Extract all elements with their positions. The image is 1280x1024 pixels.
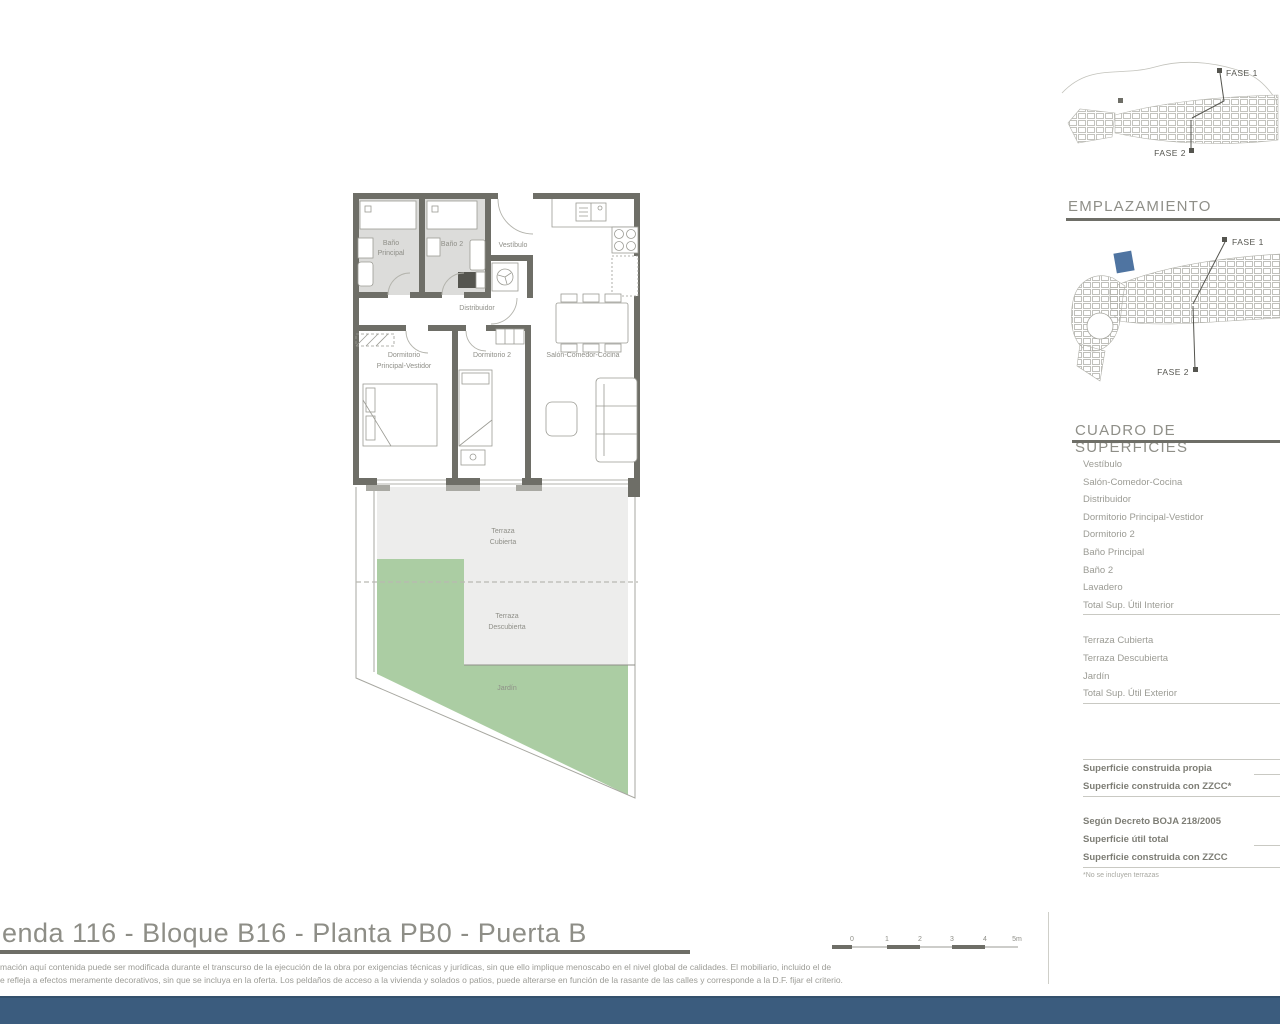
emplazamiento-rule [1066, 218, 1280, 221]
plan-sheet: Baño Principal Baño 2 Vestíbulo Distribu… [0, 0, 1280, 1024]
fase-1-marker [1217, 68, 1222, 73]
scale-tick: 4 [983, 936, 987, 943]
table-row: Terraza Cubierta [1083, 632, 1280, 650]
fase-2-marker [1189, 148, 1194, 153]
scale-tick: 2 [918, 936, 922, 943]
room-label-terraza-cubierta: Terraza [491, 528, 514, 535]
built-surface-row: Superficie construida propia [1083, 759, 1280, 778]
fase-2-label: FASE 2 [1154, 148, 1186, 158]
table-row: Dormitorio Principal-Vestidor [1083, 509, 1280, 527]
table-row: Terraza Descubierta [1083, 650, 1280, 668]
footer-divider [1048, 912, 1049, 984]
surfaces-table: Vestíbulo Salón-Comedor-Cocina Distribui… [1083, 456, 1280, 879]
table-footnote: *No se incluyen terrazas [1083, 872, 1280, 879]
value-separator [1254, 845, 1280, 846]
room-label-bano-principal: Baño [383, 240, 399, 247]
table-row: Jardín [1083, 668, 1280, 686]
scale-tick: 1 [885, 936, 889, 943]
title-rule [0, 950, 690, 954]
room-label-jardin: Jardín [497, 685, 517, 692]
room-label-bano-principal-2: Principal [378, 250, 405, 257]
room-label-dormitorio-principal-2: Principal-Vestidor [377, 363, 432, 370]
room-label-terraza-cubierta-2: Cubierta [490, 539, 517, 546]
scale-tick: 0 [850, 936, 854, 943]
table-row: Lavadero [1083, 579, 1280, 597]
room-label-terraza-descubierta: Terraza [495, 613, 518, 620]
interior-total-row: Total Sup. Útil Interior [1083, 597, 1280, 616]
washing-machine-icon [492, 263, 518, 291]
room-label-dormitorio-principal: Dormitorio [388, 352, 420, 359]
built-surface-zzcc-row: Superficie construida con ZZCC* [1083, 778, 1280, 797]
decree-row: Superficie útil total [1083, 831, 1280, 849]
footer-accent-bar [0, 996, 1280, 1024]
value-separator [1254, 774, 1280, 775]
emplazamiento-map: FASE 1 FASE 2 [1065, 226, 1280, 391]
fase-2-label: FASE 2 [1157, 367, 1189, 377]
scale-tick: 5m [1012, 936, 1022, 943]
surfaces-rule [1072, 440, 1280, 443]
scale-tick: 3 [950, 936, 954, 943]
shaft [458, 272, 476, 288]
exterior-total-row: Total Sup. Útil Exterior [1083, 685, 1280, 704]
room-label-dormitorio-2: Dormitorio 2 [473, 352, 511, 359]
table-row: Distribuidor [1083, 491, 1280, 509]
table-row: Salón-Comedor-Cocina [1083, 474, 1280, 492]
table-row: Baño Principal [1083, 544, 1280, 562]
fase-1-marker [1222, 237, 1227, 242]
scale-bar: 0 1 2 3 4 5m [825, 932, 1055, 954]
fase-1-label: FASE 1 [1226, 68, 1258, 78]
fase-2-marker [1193, 367, 1198, 372]
disclaimer-line-2: e refleja a efectos meramente decorativo… [0, 975, 1032, 985]
room-label-vestibulo: Vestíbulo [499, 242, 528, 249]
table-row: Vestíbulo [1083, 456, 1280, 474]
decree-row: Superficie construida con ZZCC [1083, 849, 1280, 868]
room-label-bano-2: Baño 2 [441, 241, 463, 248]
fase-1-label: FASE 1 [1232, 237, 1264, 247]
sheet-title: enda 116 - Bloque B16 - Planta PB0 - Pue… [2, 918, 587, 949]
overview-map: FASE 1 FASE 2 [1060, 15, 1280, 165]
table-row: Baño 2 [1083, 562, 1280, 580]
room-label-salon: Salón-Comedor-Cocina [546, 352, 619, 359]
emplazamiento-heading: EMPLAZAMIENTO [1068, 198, 1212, 215]
room-label-terraza-descubierta-2: Descubierta [488, 624, 525, 631]
surfaces-heading: CUADRO DE SUPERFICIES [1075, 422, 1280, 456]
highlighted-unit [1113, 251, 1134, 274]
decree-row: Según Decreto BOJA 218/2005 [1083, 813, 1280, 831]
floor-plan: Baño Principal Baño 2 Vestíbulo Distribu… [350, 188, 690, 813]
table-row: Dormitorio 2 [1083, 526, 1280, 544]
disclaimer-line-1: mación aquí contenida puede ser modifica… [0, 962, 1032, 972]
room-label-distribuidor: Distribuidor [459, 305, 495, 312]
